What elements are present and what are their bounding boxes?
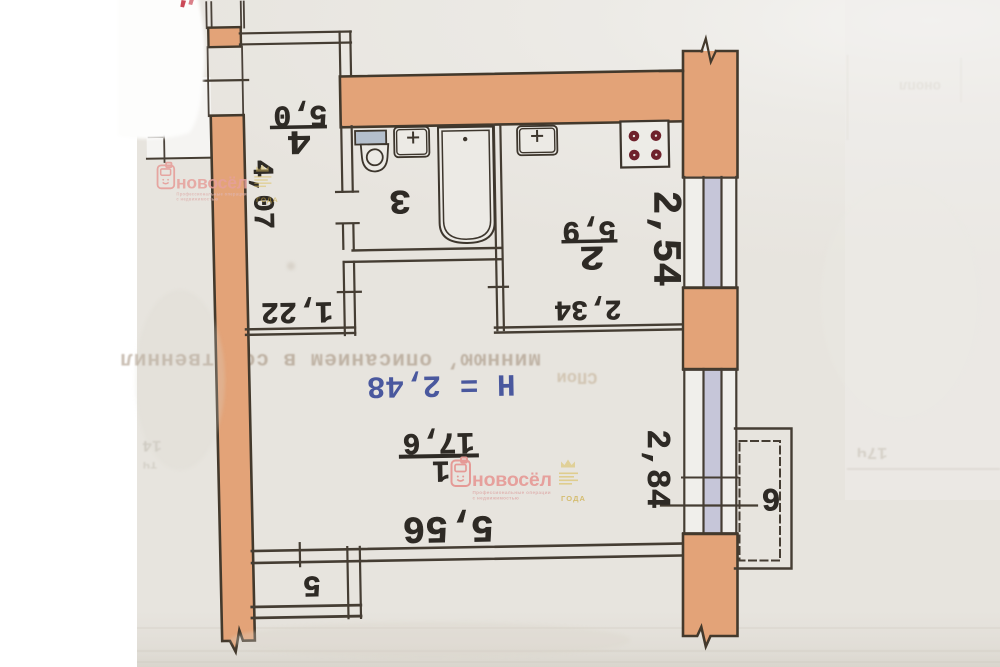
svg-text:2,34: 2,34: [554, 292, 622, 324]
svg-text:2: 2: [579, 236, 606, 274]
svg-text:СПои: СПои: [557, 367, 598, 386]
svg-text:4: 4: [287, 120, 312, 158]
svg-text:2,54: 2,54: [642, 190, 687, 286]
svg-text:1,22: 1,22: [261, 292, 334, 327]
svg-text:1: 1: [432, 452, 451, 486]
svg-text:5: 5: [303, 566, 322, 600]
svg-text:17ч: 17ч: [857, 442, 888, 461]
svg-text:тч: тч: [143, 458, 157, 472]
svg-text:5,56: 5,56: [402, 504, 494, 549]
svg-text:онопл: онопл: [899, 77, 941, 93]
svg-text:3: 3: [389, 180, 412, 218]
svg-text:6: 6: [761, 479, 780, 516]
svg-text:Н = 2,48: Н = 2,48: [366, 365, 515, 403]
svg-text:2,84: 2,84: [638, 429, 675, 508]
